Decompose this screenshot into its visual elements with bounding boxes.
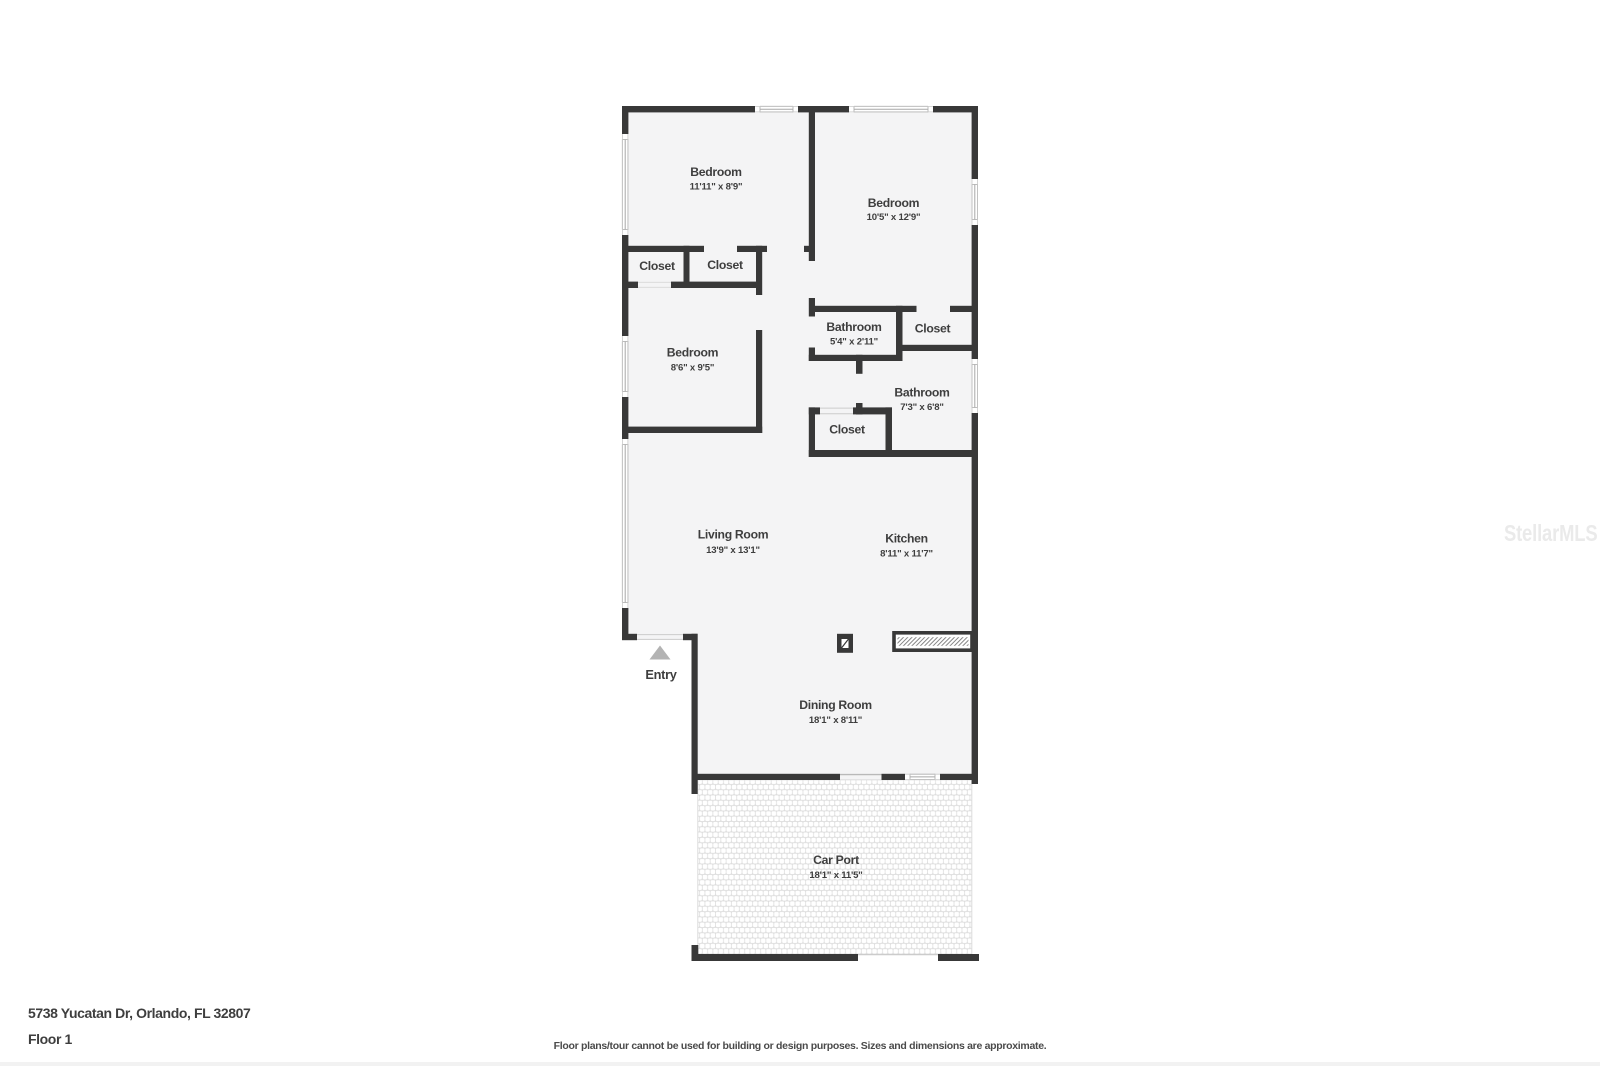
svg-text:Bathroom: Bathroom [894,386,950,400]
svg-text:Kitchen: Kitchen [885,532,928,546]
svg-text:Closet: Closet [915,322,951,336]
svg-text:Floor plans/tour cannot be use: Floor plans/tour cannot be used for buil… [554,1040,1047,1052]
svg-text:Entry: Entry [645,667,677,682]
svg-text:13'9" x 13'1": 13'9" x 13'1" [706,545,760,556]
svg-text:Closet: Closet [639,259,675,273]
svg-text:Bathroom: Bathroom [826,320,882,334]
svg-text:5738 Yucatan Dr, Orlando, FL 3: 5738 Yucatan Dr, Orlando, FL 32807 [28,1005,251,1021]
svg-text:5'4" x 2'11": 5'4" x 2'11" [830,337,878,348]
svg-text:10'5" x 12'9": 10'5" x 12'9" [867,212,921,223]
svg-text:11'11" x 8'9": 11'11" x 8'9" [690,181,743,192]
svg-text:8'11" x 11'7": 8'11" x 11'7" [880,549,933,560]
svg-text:Bedroom: Bedroom [868,196,920,210]
svg-text:Bedroom: Bedroom [690,165,742,179]
svg-text:18'1" x 11'5": 18'1" x 11'5" [809,870,862,881]
svg-text:Bedroom: Bedroom [667,346,719,360]
svg-text:18'1" x 8'11": 18'1" x 8'11" [809,715,862,726]
svg-text:Living Room: Living Room [698,528,769,542]
svg-text:Closet: Closet [707,258,743,272]
svg-text:Car Port: Car Port [813,853,859,867]
svg-text:Floor 1: Floor 1 [28,1031,72,1047]
svg-text:8'6" x 9'5": 8'6" x 9'5" [671,363,714,374]
svg-text:7'3" x 6'8": 7'3" x 6'8" [900,402,943,413]
svg-text:StellarMLS: StellarMLS [1504,521,1598,546]
svg-text:Dining Room: Dining Room [799,698,872,712]
svg-text:Closet: Closet [829,423,865,437]
